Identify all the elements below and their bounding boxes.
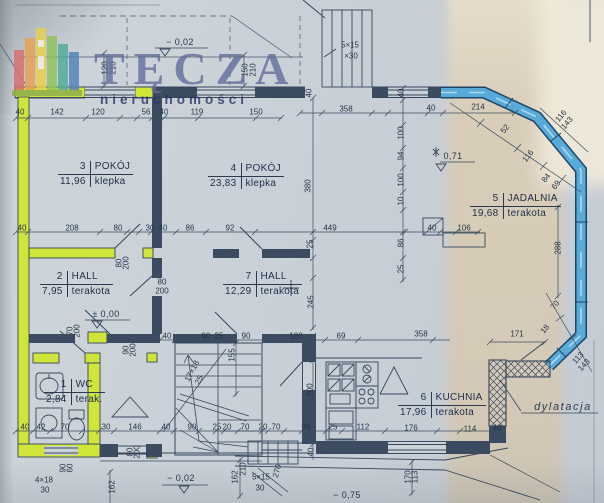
- dimension-label: 92: [226, 224, 235, 233]
- level-mark: 0,71: [443, 151, 462, 161]
- dimension-label: 56: [142, 108, 151, 117]
- dimension-label: 40: [427, 104, 436, 113]
- level-mark: − 0,02: [166, 37, 194, 47]
- room-number: 1: [44, 379, 71, 393]
- dimension-label: 270: [271, 463, 283, 478]
- dimension-label: 70: [241, 423, 250, 432]
- room-name: POKÓJ: [241, 163, 284, 177]
- dimension-label: 80: [158, 278, 167, 287]
- room-floor: terakota: [67, 285, 114, 298]
- dimension-label: 25: [306, 240, 315, 249]
- room-area: 17,96: [398, 406, 431, 419]
- dimension-label: 80: [114, 224, 123, 233]
- room-area: 19,68: [470, 207, 503, 220]
- dimension-label: 10: [397, 197, 406, 206]
- dimension-label: 40: [493, 424, 502, 433]
- dimension-label: 40: [305, 89, 314, 98]
- dimension-label: 171: [510, 330, 523, 339]
- room-area: 12,29: [223, 285, 256, 298]
- dimension-label: 200: [155, 287, 168, 296]
- dimension-label: 40: [18, 224, 27, 233]
- dimension-label: 42: [37, 423, 46, 432]
- dimension-label: 200: [73, 324, 82, 337]
- dimension-label: 40: [162, 423, 171, 432]
- dimension-label: 40: [16, 108, 25, 117]
- level-mark: − 0,02: [167, 473, 195, 483]
- dimension-label: 84: [540, 172, 553, 185]
- dimension-label: 25: [329, 423, 338, 432]
- dimension-label: 180: [289, 332, 302, 341]
- dimension-label: 94: [397, 152, 406, 161]
- dimension-label: 25: [213, 423, 222, 432]
- dimension-label: 18: [539, 323, 552, 336]
- room-label-pokoj-4: 4 POKÓJ 23,83 klepka: [208, 163, 284, 189]
- dimension-label: 40: [159, 224, 168, 233]
- room-label-kuchnia: 6 KUCHNIA 17,96 terakota: [398, 392, 486, 418]
- room-name: HALL: [256, 271, 303, 285]
- annotation: ×30: [344, 52, 358, 61]
- annotation: dylatacja: [534, 401, 592, 413]
- room-label-pokoj-3: 3 POKÓJ 11,96 klepka: [58, 161, 133, 187]
- dimension-label: 30: [102, 423, 111, 432]
- room-number: 2: [40, 271, 67, 285]
- room-number: 7: [223, 271, 256, 285]
- annotation: 30: [41, 486, 50, 495]
- room-floor: terakota: [503, 207, 561, 220]
- dimension-label: 119: [191, 108, 204, 117]
- room-floor: terakota: [431, 406, 486, 419]
- dimension-label: 40: [163, 332, 172, 341]
- dimension-label: 60: [66, 464, 75, 473]
- room-label-hall-7: 7 HALL 12,29 terakota: [223, 271, 302, 297]
- dimension-label: 52: [499, 123, 512, 136]
- level-mark: − 0,75: [333, 490, 361, 500]
- room-area: 23,83: [208, 177, 241, 190]
- dimension-label: 208: [65, 224, 78, 233]
- dimension-label: 380: [304, 179, 313, 192]
- dimension-label: 40: [307, 448, 316, 457]
- floor-plan-scan: 3 POKÓJ 11,96 klepka 4 POKÓJ 23,83 klepk…: [0, 0, 604, 503]
- dimension-label: 90: [188, 423, 197, 432]
- room-number: 5: [470, 193, 503, 207]
- room-floor: terakota: [256, 285, 303, 298]
- dimension-label: 70: [272, 423, 281, 432]
- room-name: POKÓJ: [90, 161, 133, 175]
- dimension-label: 40: [428, 224, 437, 233]
- dimension-label: 70: [61, 423, 70, 432]
- dimension-label: 70: [549, 299, 562, 312]
- room-floor: klepka: [90, 175, 133, 188]
- room-label-wc: 1 WC 2,84 terak.: [44, 379, 105, 405]
- room-area: 2,84: [44, 393, 71, 406]
- room-number: 6: [398, 392, 431, 406]
- dimension-label: 358: [339, 105, 352, 114]
- dimension-label: 150: [249, 108, 262, 117]
- dimension-label: 100: [397, 126, 406, 139]
- dimension-label: 200: [306, 383, 315, 396]
- room-label-jadalnia: 5 JADALNIA 19,68 terakota: [470, 193, 561, 219]
- dimension-label: 176: [404, 424, 417, 433]
- room-floor: terak.: [71, 393, 106, 406]
- room-label-hall-2: 2 HALL 7,95 terakota: [40, 271, 113, 297]
- room-number: 3: [58, 161, 90, 175]
- room-name: HALL: [67, 271, 114, 285]
- labels-layer: 3 POKÓJ 11,96 klepka 4 POKÓJ 23,83 klepk…: [0, 0, 604, 503]
- dimension-label: 142: [50, 108, 63, 117]
- dimension-label: 114: [464, 425, 477, 434]
- dimension-label: 30: [146, 224, 155, 233]
- dimension-label: 120: [91, 108, 104, 117]
- dimension-label: 214: [471, 103, 484, 112]
- dimension-label: 40: [160, 108, 169, 117]
- dimension-label: 90: [202, 332, 211, 341]
- dimension-label: 288: [554, 241, 563, 254]
- dimension-label: 40: [21, 423, 30, 432]
- dimension-label: 90: [242, 332, 251, 341]
- dimension-label: 210: [109, 61, 118, 74]
- room-number: 4: [208, 163, 241, 177]
- dimension-label: 69: [550, 179, 563, 192]
- dimension-label: 210: [249, 63, 258, 76]
- dimension-label: 25: [397, 265, 406, 274]
- dimension-label: 200: [129, 343, 138, 356]
- dimension-label: 200: [133, 445, 142, 458]
- dimension-label: 113: [411, 471, 420, 484]
- dimension-label: 146: [128, 423, 141, 432]
- dimension-label: 86: [186, 224, 195, 233]
- annotation: 30: [256, 484, 265, 493]
- dimension-label: 40: [397, 89, 406, 98]
- room-area: 7,95: [40, 285, 67, 298]
- dimension-label: 69: [337, 332, 346, 341]
- dimension-label: 20: [223, 423, 232, 432]
- dimension-label: 116: [521, 148, 536, 164]
- dimension-label: 100: [397, 173, 406, 186]
- room-area: 11,96: [58, 175, 90, 188]
- dimension-label: 90: [302, 423, 311, 432]
- dimension-label: 25: [215, 332, 224, 341]
- annotation: 5×15: [252, 473, 270, 482]
- dimension-label: 86: [397, 239, 406, 248]
- dimension-label: 106: [457, 224, 470, 233]
- dimension-label: 245: [307, 295, 316, 308]
- dimension-label: 358: [414, 330, 427, 339]
- dimension-label: 162: [108, 480, 117, 493]
- dimension-label: 20: [259, 423, 268, 432]
- room-name: WC: [71, 379, 106, 393]
- annotation: 4×18: [35, 476, 53, 485]
- dimension-label: 155: [228, 348, 237, 361]
- annotation: 25: [193, 374, 205, 386]
- dimension-label: 449: [323, 224, 336, 233]
- room-name: JADALNIA: [503, 193, 561, 207]
- room-name: KUCHNIA: [431, 392, 486, 406]
- dimension-label: 112: [357, 423, 370, 432]
- dimension-label: 210: [239, 462, 248, 475]
- level-mark: ± 0,00: [92, 309, 119, 319]
- room-floor: klepka: [241, 177, 284, 190]
- dimension-label: 200: [122, 256, 131, 269]
- annotation: 5×15: [341, 41, 359, 50]
